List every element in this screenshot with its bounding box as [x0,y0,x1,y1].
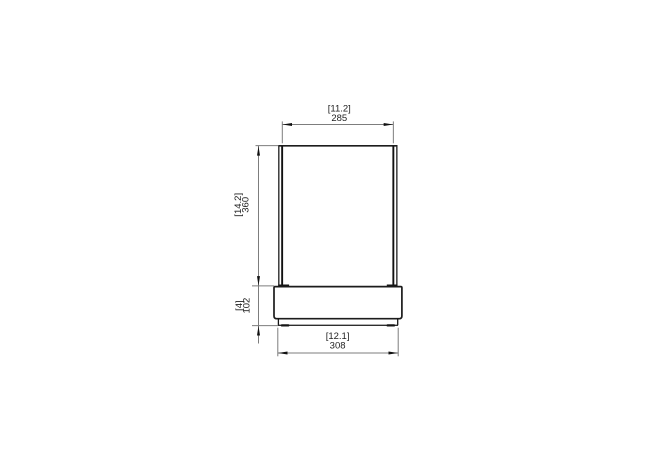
svg-text:360: 360 [240,197,251,213]
svg-text:102: 102 [241,298,252,314]
svg-text:285: 285 [331,113,347,124]
svg-text:308: 308 [330,340,346,351]
